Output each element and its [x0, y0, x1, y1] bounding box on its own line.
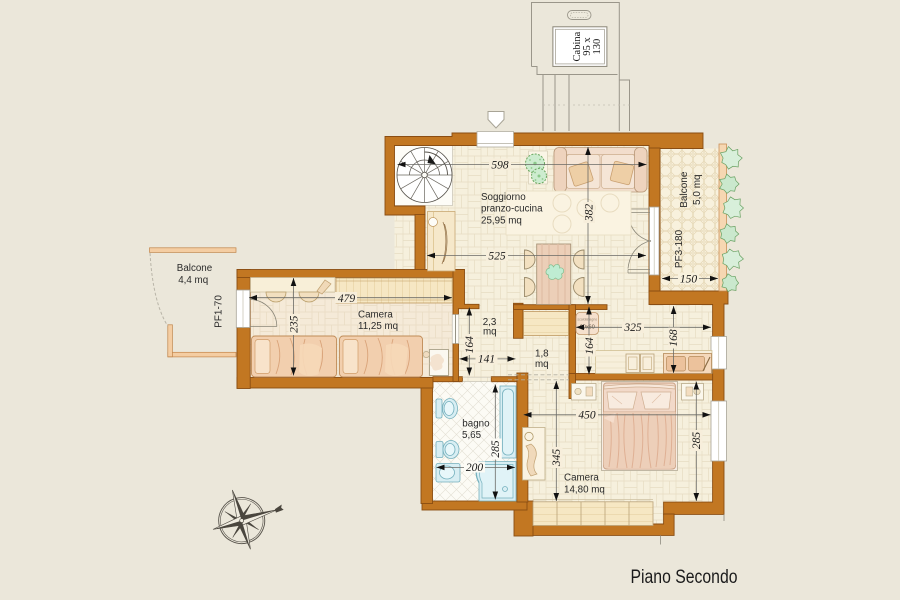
svg-text:5,65: 5,65	[462, 430, 482, 441]
svg-text:285: 285	[691, 432, 703, 450]
svg-text:1,8: 1,8	[535, 349, 549, 360]
svg-text:pranzo-cucina: pranzo-cucina	[481, 204, 543, 215]
svg-text:382: 382	[584, 204, 596, 223]
svg-text:PF3-180: PF3-180	[674, 229, 685, 268]
svg-text:Soggiorno: Soggiorno	[481, 192, 526, 203]
svg-text:450: 450	[578, 410, 596, 422]
svg-text:479: 479	[338, 293, 356, 305]
svg-text:598: 598	[491, 159, 509, 171]
svg-text:4,4 mq: 4,4 mq	[178, 275, 208, 286]
svg-text:164: 164	[584, 337, 596, 355]
svg-text:200: 200	[466, 462, 484, 474]
svg-text:14,80 mq: 14,80 mq	[564, 484, 605, 495]
svg-text:bagno: bagno	[462, 419, 490, 430]
svg-text:Balcone: Balcone	[679, 171, 690, 208]
svg-text:164: 164	[464, 336, 476, 354]
svg-text:11,25 mq: 11,25 mq	[358, 321, 398, 332]
svg-text:5,0 mq: 5,0 mq	[692, 174, 703, 205]
svg-text:Camera: Camera	[358, 309, 393, 320]
svg-text:150: 150	[680, 273, 698, 285]
svg-text:Balcone: Balcone	[177, 263, 213, 274]
svg-text:168: 168	[668, 329, 680, 347]
svg-text:Camera: Camera	[564, 473, 599, 484]
svg-text:25,95 mq: 25,95 mq	[481, 215, 522, 226]
svg-text:mq: mq	[483, 327, 497, 338]
svg-text:235: 235	[289, 315, 301, 333]
svg-text:141: 141	[478, 354, 495, 366]
svg-text:scaldabagno: scaldabagno	[577, 318, 597, 322]
svg-text:345: 345	[551, 449, 563, 468]
svg-text:mq: mq	[535, 359, 549, 370]
svg-text:525: 525	[488, 250, 506, 262]
svg-text:Piano Secondo: Piano Secondo	[631, 567, 738, 588]
svg-text:PF1-70: PF1-70	[214, 295, 225, 328]
svg-text:325: 325	[623, 322, 642, 334]
svg-text:285: 285	[490, 440, 502, 458]
svg-text:130: 130	[592, 39, 603, 55]
